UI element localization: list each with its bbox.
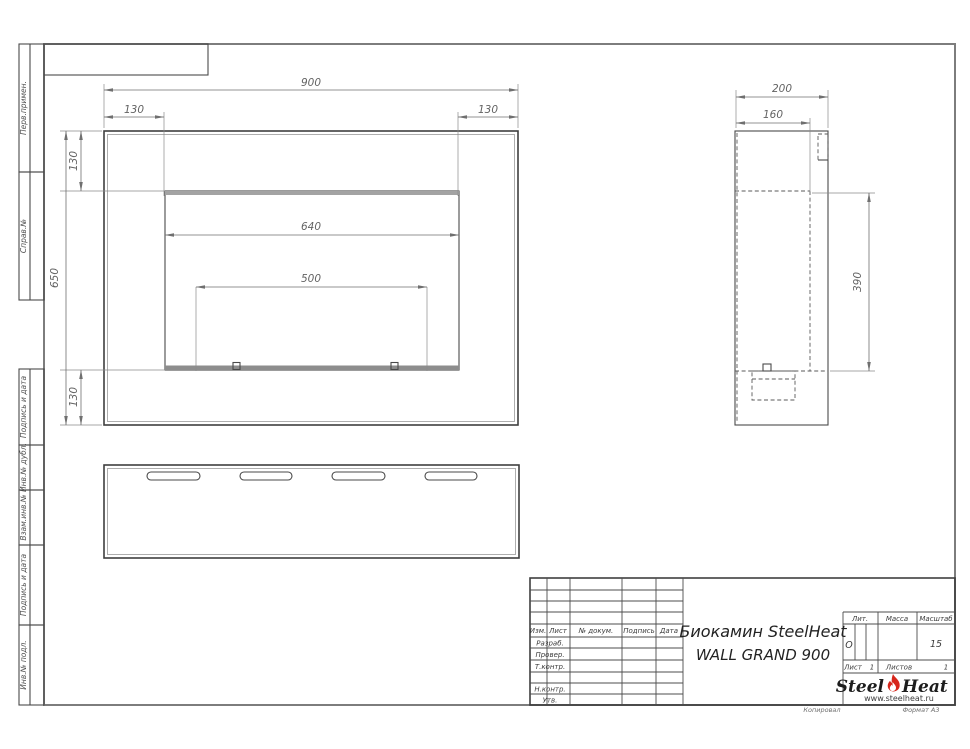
margin-label-podpis-data-2: Подпись и дата [19, 554, 28, 617]
sheet-footer: Копировал Формат А3 [803, 706, 939, 714]
title-block: Изм. Лист № докум. Подпись Дата Разраб. … [530, 578, 955, 705]
tb-sheet-label: Лист [843, 664, 863, 672]
vent-slot-2 [240, 472, 292, 480]
tb-row-prover: Провер. [535, 651, 564, 659]
tb-lit-value: О [845, 640, 853, 651]
front-view: 900 130 130 130 650 130 640 500 [49, 77, 518, 425]
footer-copied-label: Копировал [803, 706, 840, 714]
dim-front-height: 650 [49, 268, 61, 288]
tb-col-list: Лист [548, 627, 568, 635]
margin-label-inv-podl: Инв.№ подл. [19, 640, 28, 689]
margin-label-vzam-inv: Взам.инв.№ [19, 494, 28, 540]
tb-col-dokum: № докум. [578, 627, 614, 635]
dim-front-offset-right: 130 [478, 104, 498, 116]
side-view: 200 160 390 [735, 83, 875, 425]
footer-format-label: Формат А3 [902, 706, 939, 714]
tb-col-data: Дата [659, 627, 678, 635]
side-view-burner [752, 371, 795, 400]
tb-col-podpis: Подпись [623, 627, 655, 635]
margin-label-perv-primen: Перв.примен. [19, 81, 28, 135]
tb-lit-label: Лит. [851, 615, 868, 623]
steelheat-logo: Steel Heat www.steelheat.ru [836, 674, 948, 703]
dim-front-offset-left: 130 [124, 104, 144, 116]
bottom-view-outline [104, 465, 519, 558]
logo-url: www.steelheat.ru [864, 694, 934, 703]
tb-row-utv: Утв. [543, 697, 558, 705]
dim-opening-height: 390 [852, 272, 864, 292]
dim-front-border-bottom: 130 [68, 387, 80, 407]
margin-label-podpis-data-1: Подпись и дата [19, 376, 28, 439]
tb-row-tkontr: Т.контр. [535, 663, 565, 671]
left-margin-stamps: Перв.примен. Справ.№ Подпись и дата Инв.… [19, 44, 44, 705]
margin-label-sprav-no: Справ.№ [19, 219, 28, 253]
side-view-outline [735, 131, 828, 425]
tb-mass-label: Масса [886, 615, 908, 623]
tb-scale-value: 15 [930, 639, 942, 650]
product-name-line1: Биокамин SteelHeat [679, 622, 847, 641]
tb-sheets-value: 1 [944, 664, 948, 672]
dim-front-width: 900 [301, 77, 321, 89]
side-view-notch [818, 134, 828, 160]
dim-opening-width: 640 [301, 221, 321, 233]
top-left-stamp-box [44, 44, 208, 75]
dim-burner-width: 500 [301, 273, 321, 285]
product-name-line2: WALL GRAND 900 [696, 646, 830, 664]
vent-slot-1 [147, 472, 200, 480]
tb-row-razrab: Разраб. [536, 640, 564, 648]
tb-scale-label: Масштаб [919, 615, 953, 623]
side-view-burner-tab [763, 364, 771, 371]
tb-row-nkontr: Н.контр. [534, 686, 565, 694]
vent-slot-3 [332, 472, 385, 480]
tb-sheets-label: Листов [885, 664, 912, 672]
drawing-sheet: Перв.примен. Справ.№ Подпись и дата Инв.… [0, 0, 970, 749]
tb-col-izm: Изм. [530, 627, 546, 635]
bottom-view [104, 465, 519, 558]
margin-label-inv-dubl: Инв.№ дубл. [19, 443, 28, 492]
vent-slot-4 [425, 472, 477, 480]
dim-depth-total: 200 [772, 83, 792, 95]
tb-sheet-value: 1 [870, 664, 874, 672]
dim-depth-inner: 160 [763, 109, 783, 121]
dim-front-border-top: 130 [68, 151, 80, 171]
